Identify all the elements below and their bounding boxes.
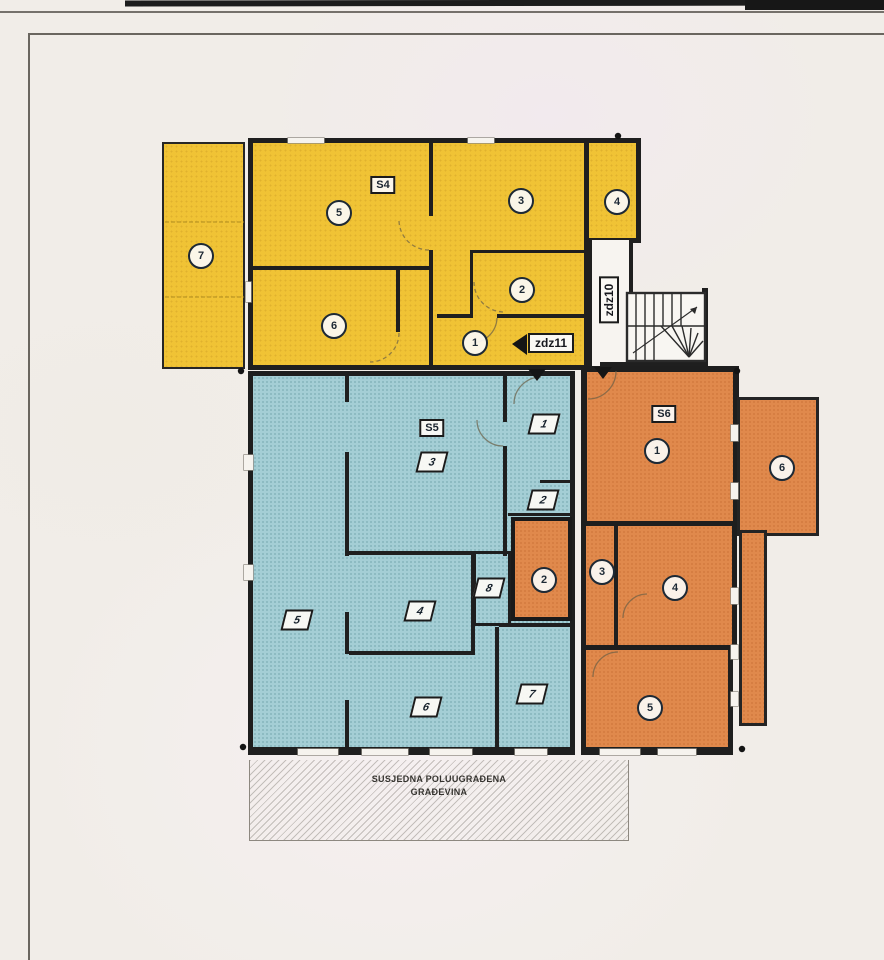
window [658, 749, 696, 755]
window [468, 138, 494, 143]
s4-room-2-label: 2 [509, 277, 535, 303]
neighbor-building-area: SUSJEDNA POLUUGRAĐENA GRAĐEVINA [249, 760, 629, 841]
s5-room-1-label: 1 [527, 414, 560, 435]
neighbor-label-line2: GRAĐEVINA [250, 786, 628, 799]
wall [429, 143, 433, 216]
s5-room-2-label: 2 [526, 490, 559, 511]
wall [252, 266, 433, 270]
page-frame-left [28, 33, 30, 960]
staircase-area [627, 293, 705, 361]
wall [345, 700, 349, 747]
wall [345, 612, 349, 654]
wall [396, 270, 400, 332]
window [244, 455, 253, 470]
window [298, 749, 338, 755]
s5-room-3-label: 3 [415, 452, 448, 473]
scanned-floor-plan-page: SUSJEDNA POLUUGRAĐENA GRAĐEVINA [0, 0, 884, 960]
s5-room-8-label: 8 [472, 578, 505, 599]
wall [508, 513, 572, 516]
s6-terrace-strip-area [739, 530, 767, 726]
s4-room-1-label: 1 [462, 330, 488, 356]
s6-unit-label: S6 [651, 405, 676, 423]
wall [470, 250, 473, 318]
scan-line [0, 11, 884, 13]
wall [497, 314, 586, 318]
window [731, 483, 738, 499]
window [731, 425, 738, 441]
s5-room-5-label: 5 [280, 610, 313, 631]
window [288, 138, 324, 143]
s5-unit-label: S5 [419, 419, 444, 437]
wall [614, 526, 618, 646]
zdz10-label: zdz10 [599, 277, 619, 324]
window [430, 749, 472, 755]
s5-room-6-label: 6 [409, 697, 442, 718]
scan-edge-corner [745, 0, 884, 10]
wall [345, 376, 349, 402]
wall [540, 480, 572, 483]
s6-room-1-label: 1 [644, 438, 670, 464]
zdz11-label: zdz11 [528, 333, 574, 353]
s4-room-4-label: 4 [604, 189, 630, 215]
s5-room-7-label: 7 [515, 684, 548, 705]
s6-room-3-label: 3 [589, 559, 615, 585]
wall [349, 651, 475, 655]
s4-room-5-label: 5 [326, 200, 352, 226]
wall [503, 376, 507, 422]
wall [437, 314, 470, 318]
wall [345, 452, 349, 556]
neighbor-label-line1: SUSJEDNA POLUUGRAĐENA [250, 773, 628, 786]
s4-room-3-label: 3 [508, 188, 534, 214]
s6-room-5-label: 5 [637, 695, 663, 721]
window [362, 749, 408, 755]
wall [349, 551, 475, 555]
wall [470, 250, 586, 253]
s6-rooms34-area [581, 521, 737, 651]
s6-room-4-label: 4 [662, 575, 688, 601]
window [515, 749, 547, 755]
s4-room-6-label: 6 [321, 313, 347, 339]
window [731, 588, 738, 604]
window [731, 645, 738, 659]
wall [588, 238, 592, 370]
window [600, 749, 640, 755]
s5-room-4-label: 4 [403, 601, 436, 622]
s4-unit-label: S4 [370, 176, 395, 194]
s6-room-2-label: 2 [531, 567, 557, 593]
wall [495, 627, 499, 748]
window [244, 565, 253, 580]
window [246, 282, 251, 302]
s6-room-6-label: 6 [769, 455, 795, 481]
page-frame-top [28, 33, 884, 35]
wall [629, 240, 633, 295]
s4-room-7-label: 7 [188, 243, 214, 269]
wall [499, 623, 571, 627]
window [731, 692, 738, 706]
wall [503, 446, 507, 556]
